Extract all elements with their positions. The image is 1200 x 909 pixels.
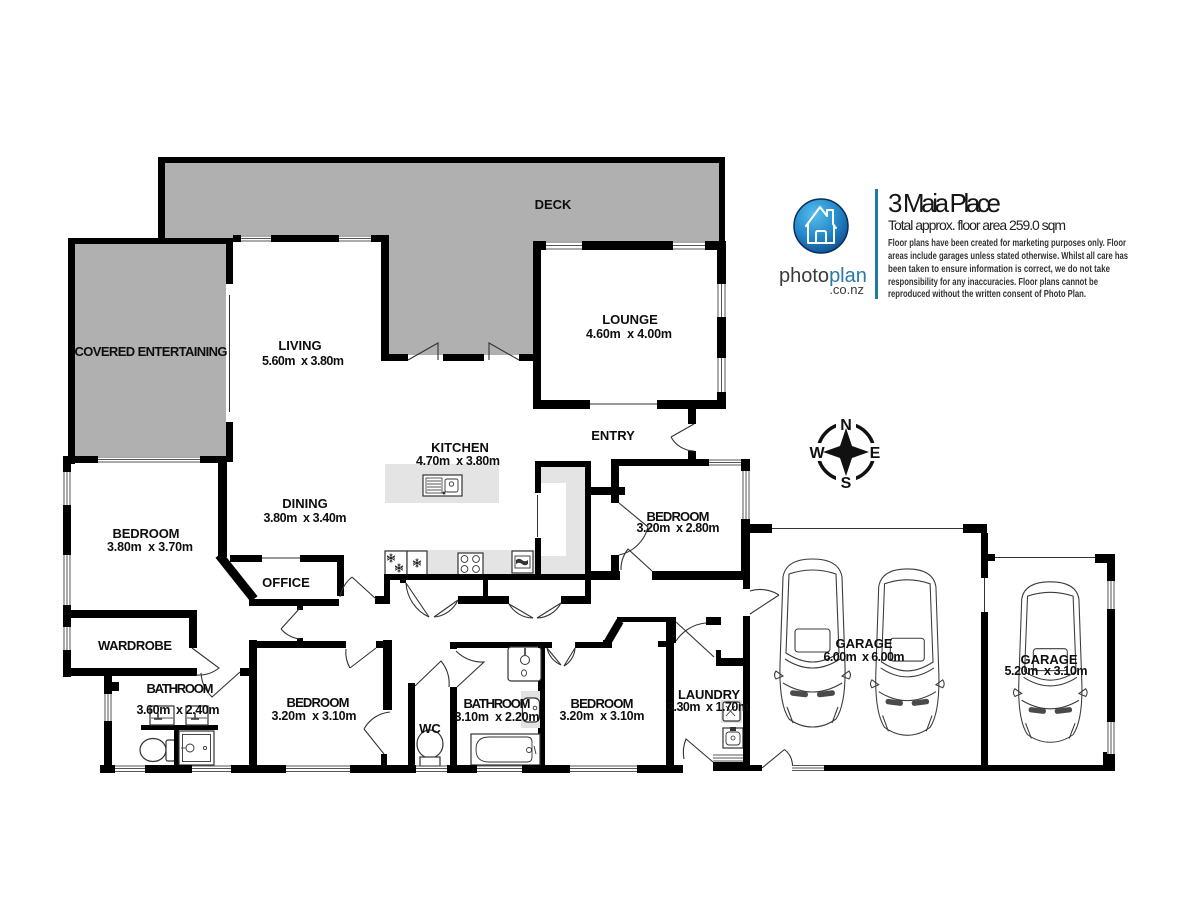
svg-text:E: E [870,445,881,462]
svg-text:3.30m x 1.70m: 3.30m x 1.70m [667,700,749,714]
svg-text:WC: WC [419,721,441,736]
svg-text:areas include garages unless s: areas include garages unless stated othe… [888,251,1128,262]
svg-text:BATHROOM: BATHROOM [147,681,214,696]
svg-text:BATHROOM: BATHROOM [464,696,531,711]
svg-text:OFFICE: OFFICE [262,575,310,590]
svg-text:reproduced without the written: reproduced without the written consent o… [888,289,1086,300]
svg-text:3.20m x 3.10m: 3.20m x 3.10m [272,709,357,723]
svg-text:4.60m x 4.00m: 4.60m x 4.00m [586,327,672,341]
svg-text:ENTRY: ENTRY [591,428,635,443]
svg-text:Floor plans have been created: Floor plans have been created for market… [888,238,1126,249]
svg-text:Total approx. floor area 259.0: Total approx. floor area 259.0 sqm [888,217,1066,233]
svg-text:W: W [809,445,825,462]
svg-text:DINING: DINING [282,496,328,511]
svg-text:S: S [841,475,852,492]
svg-text:3.10m x 2.20m: 3.10m x 2.20m [455,710,540,724]
svg-text:COVERED ENTERTAINING: COVERED ENTERTAINING [75,344,228,359]
svg-text:3 Maia Place: 3 Maia Place [888,188,1001,218]
svg-text:4.70m x 3.80m: 4.70m x 3.80m [416,454,500,468]
svg-text:LOUNGE: LOUNGE [602,312,658,327]
svg-text:6.00m x 6.00m: 6.00m x 6.00m [824,650,905,664]
svg-text:.co.nz: .co.nz [829,282,864,297]
svg-text:GARAGE: GARAGE [835,636,892,651]
svg-text:5.60m x 3.80m: 5.60m x 3.80m [262,354,344,368]
svg-text:3.20m x 2.80m: 3.20m x 2.80m [637,521,720,535]
svg-text:WARDROBE: WARDROBE [98,638,172,653]
svg-text:3.20m x 3.10m: 3.20m x 3.10m [560,709,645,723]
svg-text:BEDROOM: BEDROOM [287,695,350,710]
svg-text:responsibility for any inaccur: responsibility for any inaccuracies. Flo… [888,277,1098,288]
svg-text:3.80m x 3.70m: 3.80m x 3.70m [107,540,193,554]
svg-text:BEDROOM: BEDROOM [113,526,180,541]
svg-text:been taken to ensure informati: been taken to ensure information is corr… [888,264,1110,275]
svg-text:LIVING: LIVING [278,338,321,353]
svg-text:KITCHEN: KITCHEN [431,440,489,455]
svg-text:DECK: DECK [535,197,572,212]
svg-text:5.20m x 3.10m: 5.20m x 3.10m [1005,664,1088,678]
svg-text:3.80m x 3.40m: 3.80m x 3.40m [264,511,347,525]
svg-text:3.60m x 2.40m: 3.60m x 2.40m [137,703,220,717]
